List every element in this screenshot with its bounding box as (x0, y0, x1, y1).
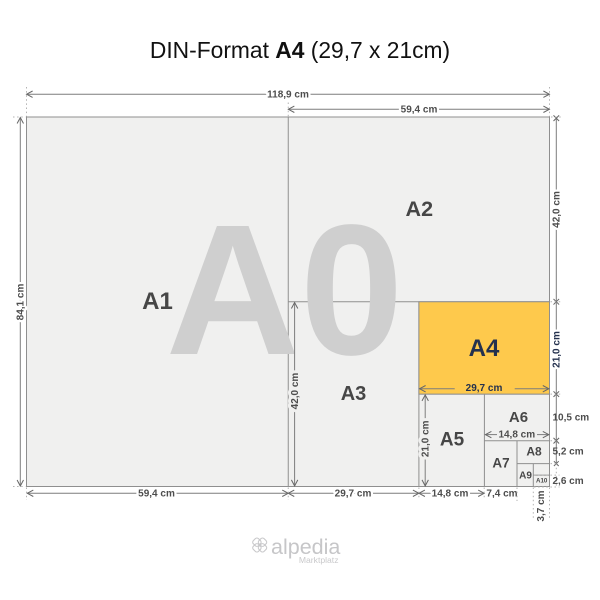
svg-text:14,8 cm: 14,8 cm (498, 430, 535, 441)
svg-text:59,4 cm: 59,4 cm (138, 489, 175, 500)
svg-text:84,1 cm: 84,1 cm (16, 284, 27, 321)
svg-text:29,7 cm: 29,7 cm (335, 489, 372, 500)
svg-text:14,8 cm: 14,8 cm (432, 489, 469, 500)
svg-text:A10: A10 (536, 478, 548, 485)
svg-text:21,0 cm: 21,0 cm (420, 420, 431, 457)
svg-text:A7: A7 (492, 456, 509, 471)
svg-text:A5: A5 (440, 430, 465, 451)
svg-text:59,4 cm: 59,4 cm (401, 105, 438, 116)
svg-text:2,6 cm: 2,6 cm (553, 476, 584, 487)
svg-text:118,9 cm: 118,9 cm (267, 90, 309, 101)
svg-text:A8: A8 (526, 445, 542, 459)
svg-text:A3: A3 (341, 383, 367, 405)
svg-text:7,4 cm: 7,4 cm (486, 489, 517, 500)
svg-text:A2: A2 (406, 197, 434, 221)
svg-text:5,2 cm: 5,2 cm (553, 446, 584, 457)
svg-text:10,5 cm: 10,5 cm (553, 412, 590, 423)
svg-text:29,7 cm: 29,7 cm (466, 383, 503, 394)
svg-text:21,0 cm: 21,0 cm (552, 331, 563, 368)
svg-text:A0: A0 (166, 187, 404, 394)
svg-text:A1: A1 (142, 288, 173, 315)
svg-text:3,7 cm: 3,7 cm (536, 490, 547, 521)
svg-text:42,0 cm: 42,0 cm (552, 191, 563, 228)
svg-text:DIN-Format A4 (29,7 x 21cm): DIN-Format A4 (29,7 x 21cm) (150, 37, 450, 63)
svg-text:A9: A9 (519, 471, 532, 482)
svg-text:42,0 cm: 42,0 cm (290, 373, 301, 410)
svg-text:Marktplatz: Marktplatz (299, 555, 339, 565)
svg-text:A6: A6 (509, 409, 528, 426)
svg-text:A4: A4 (469, 335, 500, 362)
